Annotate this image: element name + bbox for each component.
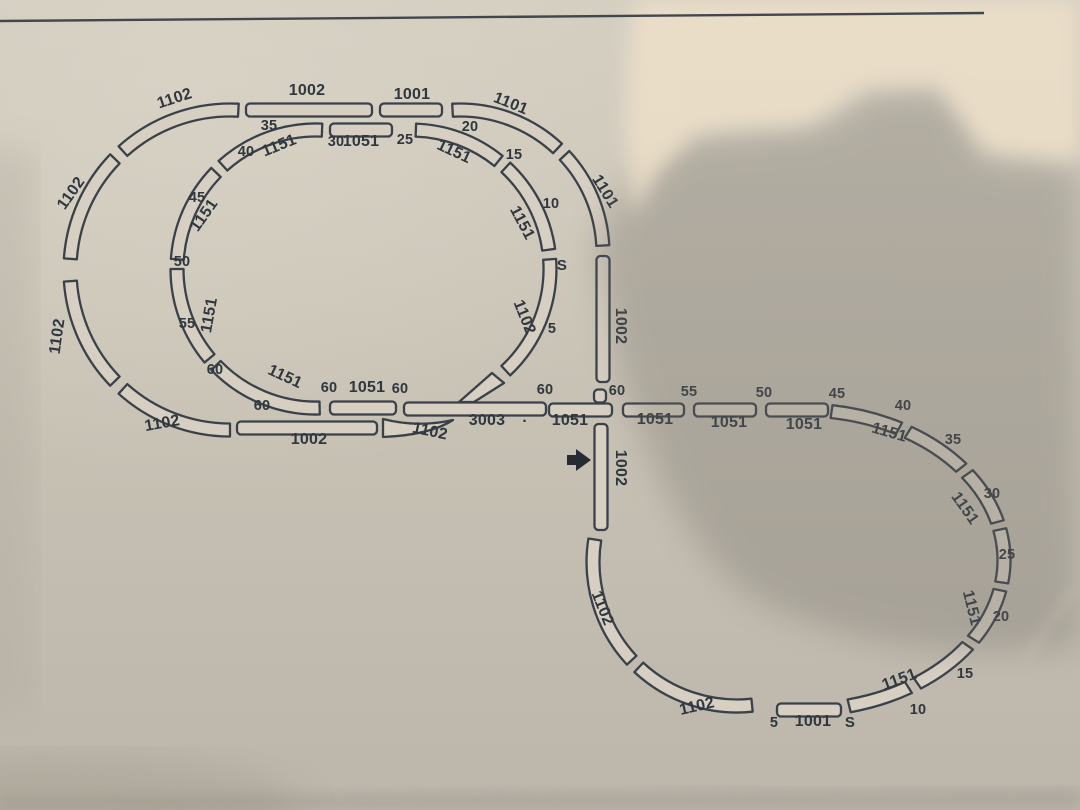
track-label: 60	[321, 380, 338, 396]
track-label: 5	[770, 715, 778, 731]
left-edge-shade	[0, 150, 35, 710]
track-label: 55	[179, 316, 196, 332]
track-label: 60	[392, 381, 409, 397]
track-label: 1002	[612, 450, 629, 486]
track-label: 1002	[289, 82, 325, 99]
track-label: 10	[543, 196, 560, 212]
track-label: 50	[174, 254, 191, 270]
track-label: S	[845, 714, 855, 731]
track-label: 10	[910, 702, 927, 718]
track-label: 3003	[469, 412, 505, 429]
track-label: S	[557, 257, 567, 274]
track-label: 1001	[795, 713, 831, 730]
track-label: 15	[506, 147, 523, 163]
track-label: 60	[254, 398, 271, 414]
track-label: 60	[609, 383, 626, 399]
track-label: 15	[957, 666, 974, 682]
track-piece-1051	[330, 402, 396, 415]
track-label: 30	[328, 134, 345, 150]
track-label: 60	[207, 362, 224, 378]
track-plan: 1102100210011101351151301051251151204015…	[0, 0, 1080, 810]
track-label: 35	[261, 118, 278, 134]
track-label: 20	[462, 119, 479, 135]
track-label: 5	[548, 321, 556, 337]
track-piece-connector	[594, 390, 606, 403]
track-label: 40	[238, 144, 255, 160]
track-label: 1051	[349, 379, 385, 396]
track-label: 1002	[291, 431, 327, 448]
track-label: ·	[522, 413, 528, 430]
track-label: 1051	[343, 133, 379, 150]
track-label: 60	[537, 382, 554, 398]
track-label: 25	[397, 132, 414, 148]
photo-background: 1102100210011101351151301051251151204015…	[0, 0, 1080, 810]
track-label: 1001	[394, 86, 430, 103]
track-piece-1001	[380, 104, 442, 117]
track-piece-1002	[246, 104, 372, 117]
track-piece-1002	[595, 424, 608, 530]
track-label: 1051	[552, 412, 588, 429]
